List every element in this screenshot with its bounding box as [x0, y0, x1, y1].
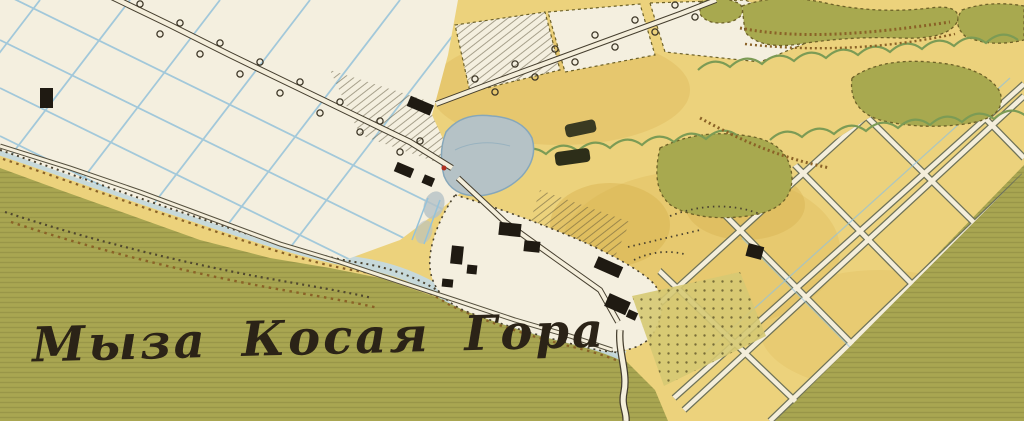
historical-map: Мыза Косая Гора	[0, 0, 1024, 421]
building	[40, 88, 53, 108]
grove	[657, 134, 792, 218]
building	[467, 264, 478, 274]
building	[498, 222, 521, 237]
building	[442, 278, 454, 287]
survey-mark	[442, 166, 447, 171]
building	[450, 245, 464, 264]
map-canvas: Мыза Косая Гора	[0, 0, 1024, 421]
building	[523, 240, 540, 253]
